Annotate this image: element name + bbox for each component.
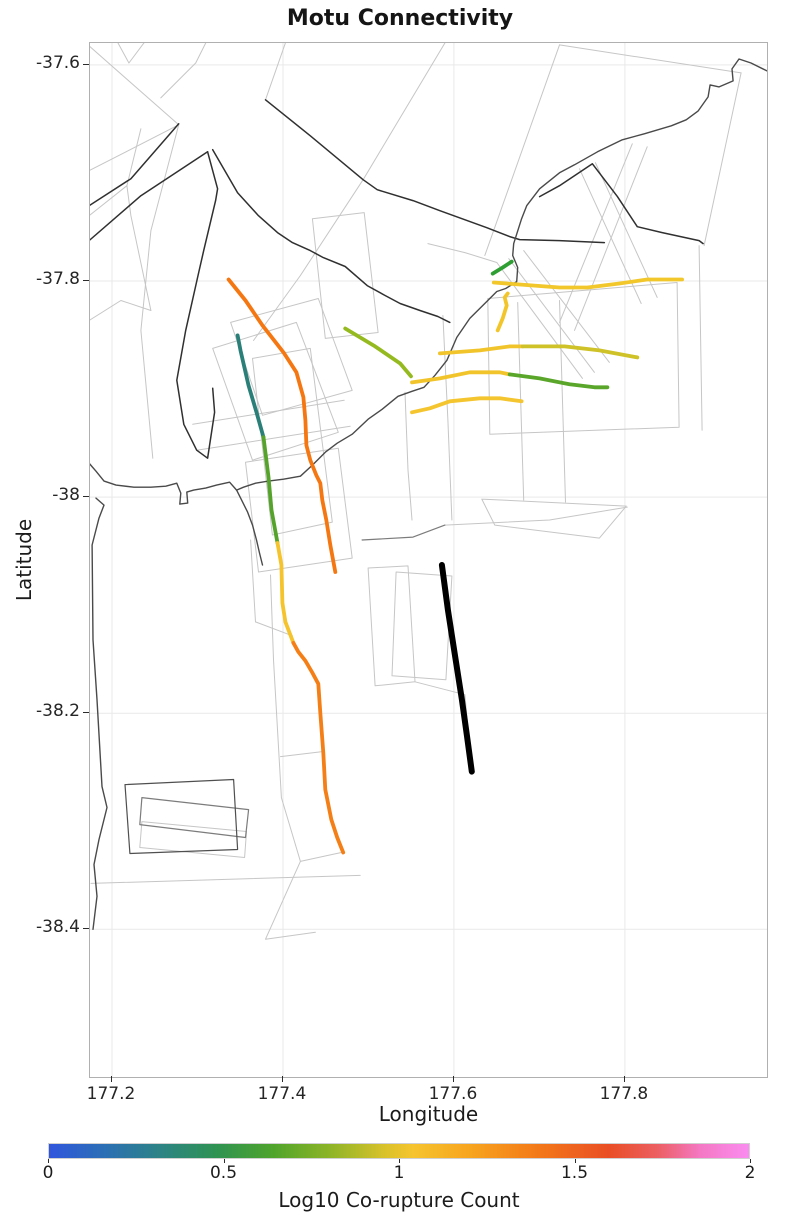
y-tick-mark <box>83 64 89 65</box>
x-tick-label: 177.6 <box>429 1084 478 1104</box>
colorbar-tick-label: 0 <box>43 1163 54 1183</box>
x-axis-label: Longitude <box>89 1102 768 1126</box>
y-tick-label: -37.8 <box>0 269 80 289</box>
chart-title: Motu Connectivity <box>0 6 800 31</box>
x-tick-label: 177.8 <box>600 1084 649 1104</box>
y-tick-label: -38.4 <box>0 917 80 937</box>
figure: Motu Connectivity Longitude Latitude Log… <box>0 0 800 1225</box>
x-tick-mark <box>453 1076 454 1082</box>
y-tick-mark <box>83 712 89 713</box>
colorbar-tick-label: 1 <box>394 1163 405 1183</box>
y-tick-mark <box>83 496 89 497</box>
x-tick-mark <box>624 1076 625 1082</box>
y-axis-label: Latitude <box>12 500 36 620</box>
y-tick-mark <box>83 280 89 281</box>
y-tick-mark <box>83 928 89 929</box>
y-tick-label: -37.6 <box>0 53 80 73</box>
map-canvas <box>90 43 767 1077</box>
x-tick-mark <box>282 1076 283 1082</box>
x-tick-label: 177.4 <box>258 1084 307 1104</box>
colorbar-label: Log10 Co-rupture Count <box>48 1188 750 1212</box>
x-tick-label: 177.2 <box>87 1084 136 1104</box>
y-tick-label: -38.2 <box>0 701 80 721</box>
colorbar-tick-label: 2 <box>745 1163 756 1183</box>
colorbar-tick-label: 0.5 <box>210 1163 237 1183</box>
plot-area <box>89 42 768 1078</box>
x-tick-mark <box>111 1076 112 1082</box>
colorbar-tick-label: 1.5 <box>561 1163 588 1183</box>
colorbar <box>48 1143 750 1159</box>
y-tick-label: -38 <box>0 485 80 505</box>
